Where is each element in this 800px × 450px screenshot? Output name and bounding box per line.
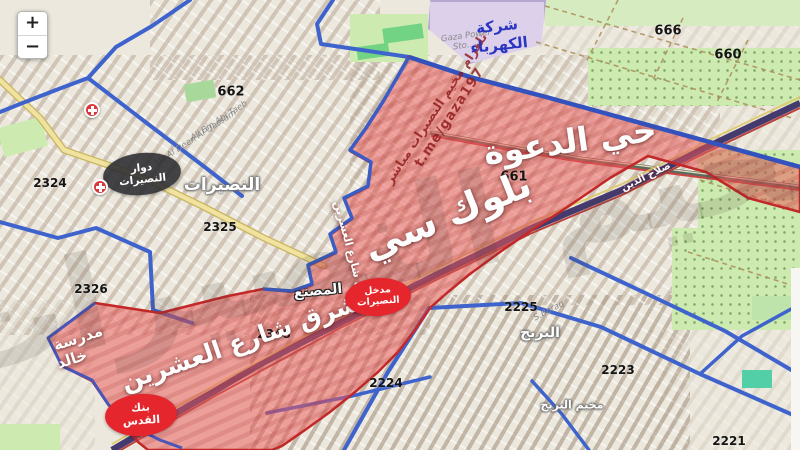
hospital-marker-icon[interactable] <box>92 179 108 195</box>
nuseirat-entrance-badge-text: النصيرات <box>357 296 400 310</box>
quds-bank-badge-text: القدس <box>122 414 160 429</box>
hospital-marker-icon[interactable] <box>84 102 100 118</box>
zoom-in-button[interactable]: + <box>18 12 47 35</box>
evacuation-zone <box>48 57 800 450</box>
red-zone-building-rows <box>48 57 800 450</box>
zoom-out-button[interactable]: − <box>18 36 47 59</box>
right-edge-strip <box>791 268 800 450</box>
map-canvas[interactable]: مخيم النصيرات تلغرام مخيم النصيرات مباشر… <box>0 0 800 450</box>
map-vector-layer <box>0 0 800 450</box>
nuseirat-roundabout-badge-text: النصيرات <box>119 172 167 189</box>
zoom-control: + − <box>17 11 48 59</box>
